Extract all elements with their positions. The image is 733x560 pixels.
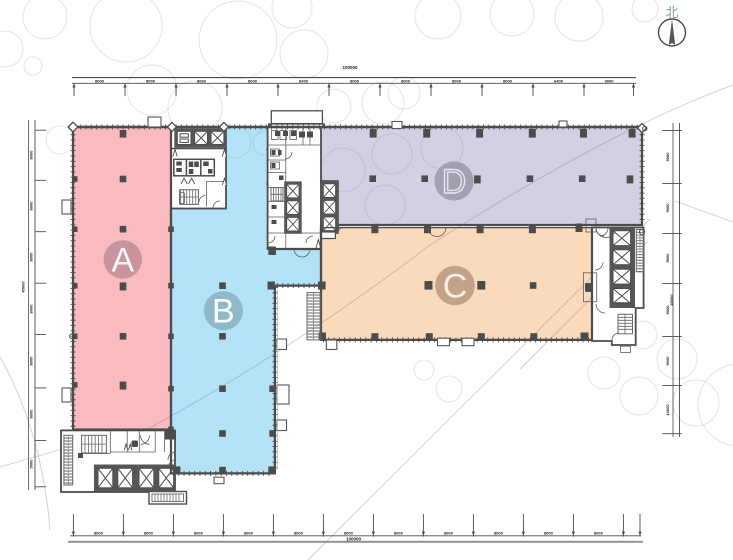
- svg-text:45000: 45000: [21, 281, 26, 293]
- svg-text:8000: 8000: [29, 150, 34, 160]
- svg-text:8000: 8000: [144, 530, 154, 535]
- svg-text:8000: 8000: [29, 409, 34, 419]
- svg-text:8000: 8000: [244, 530, 254, 535]
- svg-text:9000: 9000: [605, 78, 615, 83]
- svg-text:8000: 8000: [444, 530, 454, 535]
- svg-text:B: B: [212, 293, 235, 331]
- svg-text:北: 北: [665, 5, 678, 20]
- svg-text:8000: 8000: [29, 356, 34, 366]
- svg-text:8400: 8400: [299, 78, 309, 83]
- svg-text:8000: 8000: [452, 78, 462, 83]
- svg-text:8000: 8000: [94, 530, 104, 535]
- svg-text:8000: 8000: [350, 78, 360, 83]
- svg-text:D: D: [442, 163, 467, 201]
- svg-text:8000: 8000: [344, 530, 354, 535]
- svg-text:8000: 8000: [594, 530, 604, 535]
- svg-text:8000: 8000: [95, 78, 105, 83]
- svg-text:9000: 9000: [665, 305, 670, 315]
- svg-text:45000: 45000: [669, 294, 674, 306]
- svg-text:8000: 8000: [194, 530, 204, 535]
- svg-text:100000: 100000: [342, 65, 358, 70]
- svg-text:9000: 9000: [665, 356, 670, 366]
- svg-text:6400: 6400: [554, 78, 564, 83]
- svg-text:C: C: [443, 268, 468, 306]
- svg-text:9000: 9000: [665, 152, 670, 162]
- svg-text:8000: 8000: [294, 530, 304, 535]
- svg-text:5000: 5000: [29, 459, 34, 469]
- svg-text:A: A: [111, 242, 134, 280]
- svg-text:9000: 9000: [665, 253, 670, 263]
- svg-text:8000: 8000: [394, 530, 404, 535]
- svg-text:8000: 8000: [146, 78, 156, 83]
- svg-text:8000: 8000: [248, 78, 258, 83]
- svg-text:8000: 8000: [544, 530, 554, 535]
- svg-text:10000: 10000: [665, 404, 670, 416]
- svg-text:8000: 8000: [29, 304, 34, 314]
- svg-text:8000: 8000: [29, 201, 34, 211]
- svg-text:8000: 8000: [494, 530, 504, 535]
- svg-text:8000: 8000: [197, 78, 207, 83]
- svg-text:8000: 8000: [29, 252, 34, 262]
- svg-text:8000: 8000: [503, 78, 513, 83]
- svg-text:100000: 100000: [346, 537, 362, 542]
- svg-text:9000: 9000: [665, 203, 670, 213]
- svg-text:8000: 8000: [401, 78, 411, 83]
